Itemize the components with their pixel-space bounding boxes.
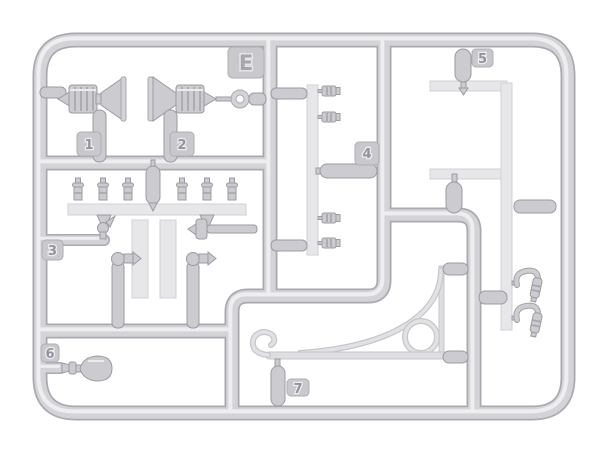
tag-2-label: 2: [177, 138, 186, 153]
tag-3-label: 3: [48, 244, 57, 259]
tag-6-label: 6: [45, 347, 54, 362]
center-capsule-part: [146, 166, 160, 204]
gate-capsule-upper: [271, 88, 307, 99]
hook-parts: [512, 271, 543, 338]
tag-2: 2: [170, 132, 194, 156]
tag-4-label: 4: [362, 147, 371, 162]
plank-mid-right: [430, 169, 507, 179]
part-2-bell-rim: [148, 77, 153, 121]
plank-vertical-left-2: [160, 220, 176, 298]
sprue-canvas: E 1 2 3 4 5 6 7: [0, 0, 600, 450]
part-2-rod: [216, 97, 232, 101]
tag-4: 4: [355, 142, 379, 165]
bracket-gate-bottom: [443, 351, 468, 363]
tag-6: 6: [41, 344, 59, 362]
tag-5-label: 5: [478, 52, 487, 67]
valve-stem-parts-row: [73, 160, 238, 231]
tag-3: 3: [42, 240, 63, 260]
capsule-mid-right: [479, 291, 507, 304]
tag-7-label: 7: [293, 382, 302, 397]
part-4-capsule: [320, 164, 377, 178]
part-4-group: [271, 86, 377, 251]
gate-capsule-lower: [271, 240, 307, 251]
tag-7: 7: [287, 379, 309, 397]
stem-fitting-right: [187, 252, 217, 328]
hook-part-2: [512, 306, 543, 338]
part-7-bracket: [253, 263, 468, 406]
capsule-to-right-frame: [514, 200, 556, 213]
plank-top-right: [430, 81, 507, 91]
bracket-main-bar: [266, 352, 448, 359]
tag-letter-e-label: E: [239, 51, 253, 75]
tag-1: 1: [77, 132, 101, 156]
tag-1-label: 1: [84, 138, 93, 153]
hook-part-1: [512, 271, 543, 303]
bracket-sprue-stem: [271, 366, 285, 406]
capsule-on-elbow: [446, 182, 462, 213]
bracket-gate-top: [443, 263, 468, 275]
plank-small-parts-row: [68, 204, 246, 215]
part-6-teardrop: [80, 356, 112, 381]
part-2-gate-capsule: [249, 93, 266, 105]
rod-fitting-part: [188, 219, 257, 239]
tag-letter-e: E: [228, 47, 264, 78]
part-5-capsule: [455, 49, 471, 82]
sprue-photo: E 1 2 3 4 5 6 7: [0, 0, 600, 450]
part-2-cone-tip: [204, 92, 216, 106]
part-1-bell-rim: [121, 77, 126, 121]
part-2-horn-drum: [148, 77, 266, 162]
part-6-group: [62, 356, 112, 381]
tag-5: 5: [472, 49, 493, 67]
